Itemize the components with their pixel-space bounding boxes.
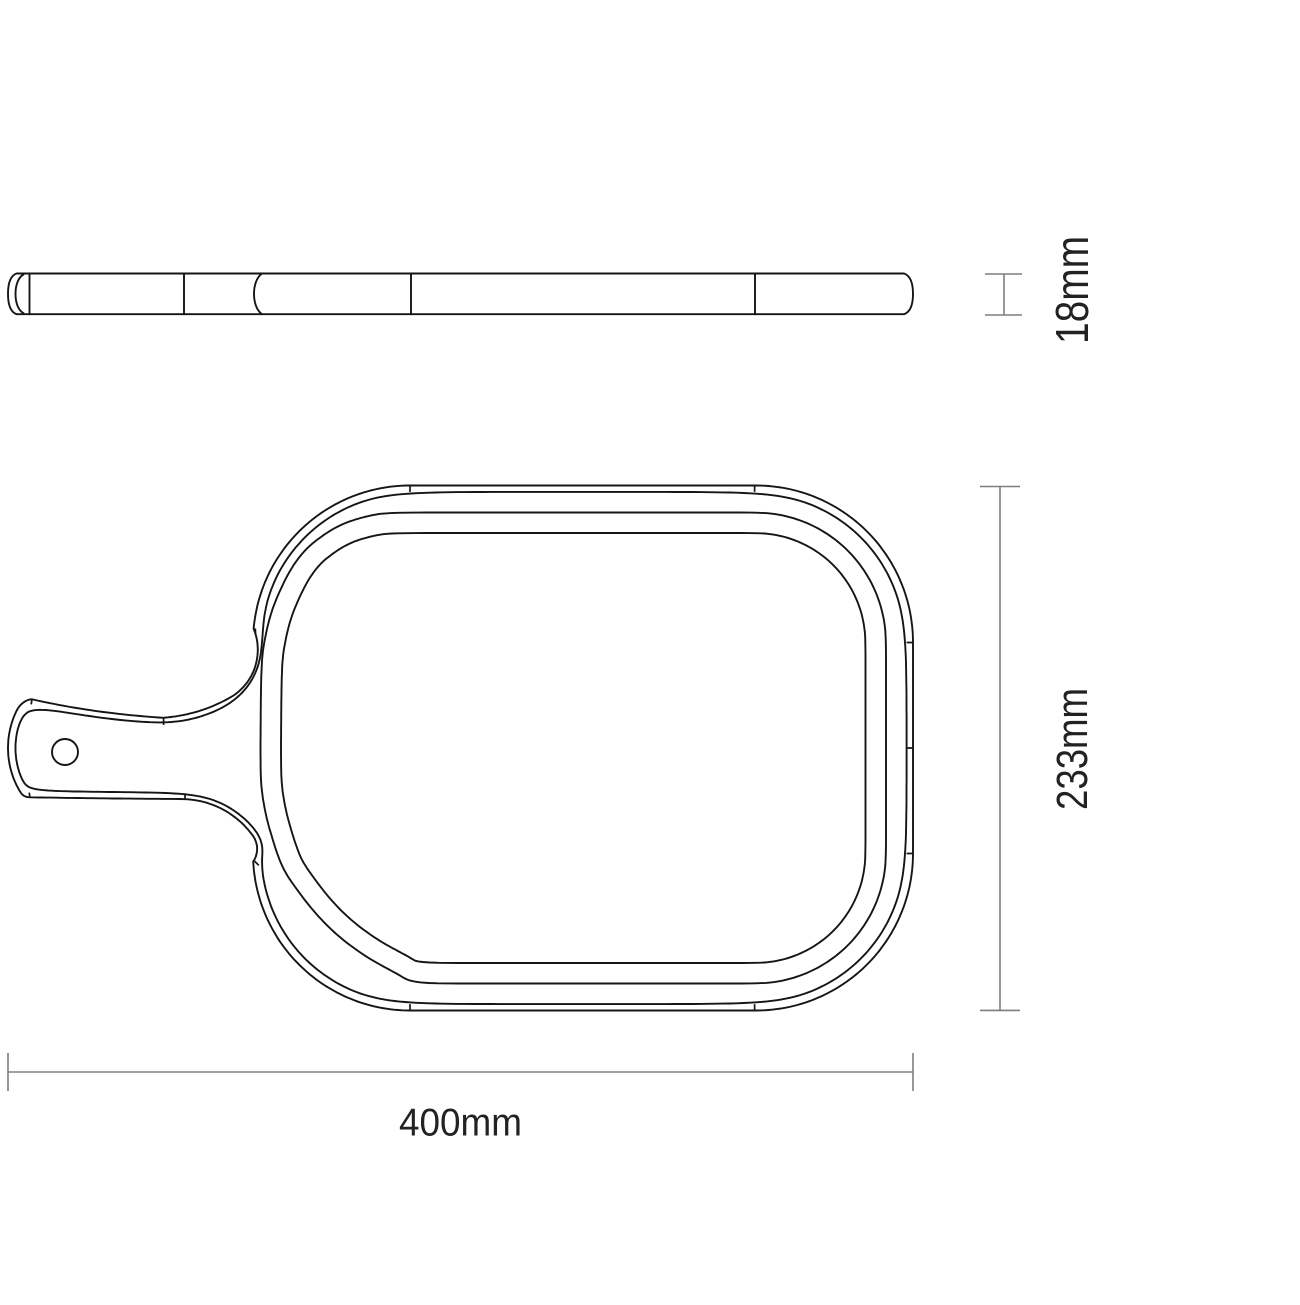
svg-text:18mm: 18mm xyxy=(1046,236,1098,344)
svg-text:400mm: 400mm xyxy=(399,1102,522,1145)
svg-text:233mm: 233mm xyxy=(1048,688,1097,810)
